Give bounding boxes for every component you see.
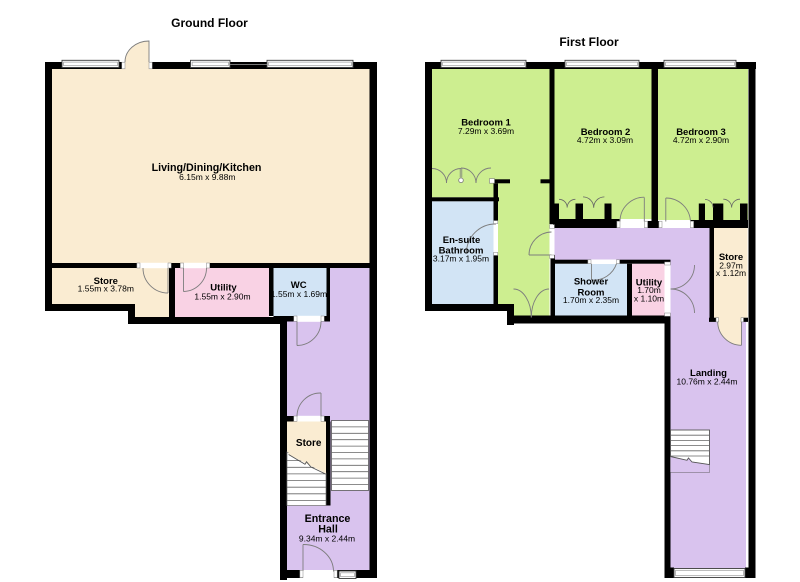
svg-text:x 1.10m: x 1.10m (634, 294, 664, 304)
svg-text:1.55m x 3.78m: 1.55m x 3.78m (78, 283, 134, 293)
svg-text:7.29m x 3.69m: 7.29m x 3.69m (458, 126, 514, 136)
svg-text:Ground Floor: Ground Floor (171, 16, 248, 30)
svg-text:1.70m x 2.35m: 1.70m x 2.35m (563, 295, 619, 305)
svg-text:6.15m x 9.88m: 6.15m x 9.88m (179, 172, 235, 182)
svg-text:x 1.12m: x 1.12m (716, 268, 746, 278)
svg-text:1.55m x 2.90m: 1.55m x 2.90m (194, 292, 250, 302)
svg-text:4.72m x 2.90m: 4.72m x 2.90m (673, 135, 729, 145)
svg-text:9.34m x 2.44m: 9.34m x 2.44m (299, 534, 355, 544)
svg-text:Store: Store (296, 438, 322, 449)
svg-text:En-suite: En-suite (443, 235, 480, 246)
svg-text:1.55m x 1.69m: 1.55m x 1.69m (271, 289, 327, 299)
svg-text:10.76m x 2.44m: 10.76m x 2.44m (677, 377, 738, 387)
svg-text:Shower: Shower (574, 277, 609, 288)
svg-text:3.17m x 1.95m: 3.17m x 1.95m (433, 254, 489, 264)
svg-text:4.72m x 3.09m: 4.72m x 3.09m (577, 135, 633, 145)
svg-text:First Floor: First Floor (559, 35, 619, 49)
